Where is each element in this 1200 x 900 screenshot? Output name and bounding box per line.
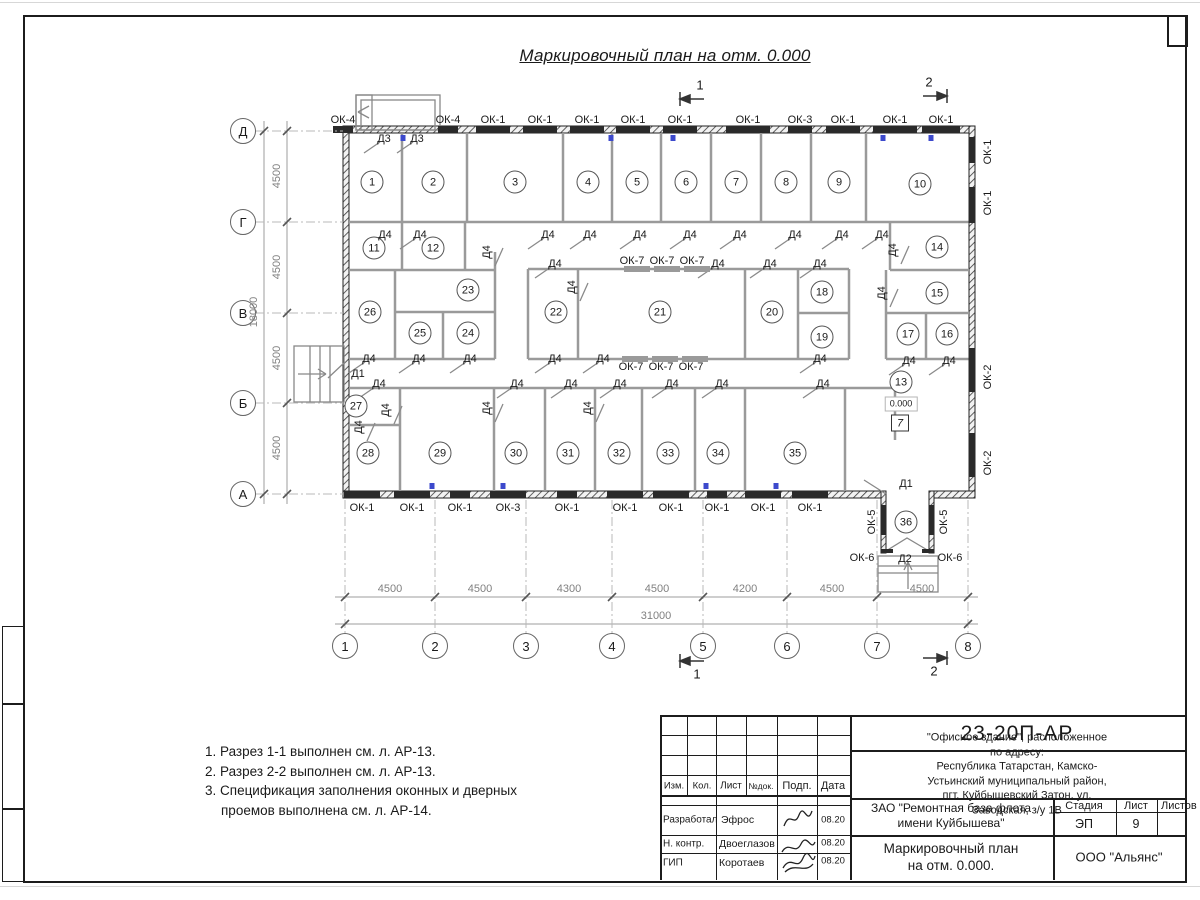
tb-client: ЗАО "Ремонтная база флота имени Куйбышев… [871, 801, 1031, 831]
tb-sheet-title: Маркировочный план на отм. 0.000. [884, 840, 1019, 874]
section-number: 1 [693, 667, 700, 682]
tb-name: Двоеглазов [719, 838, 775, 850]
signature [781, 806, 815, 832]
note-line: 3. Спецификация заполнения оконных и две… [205, 781, 517, 801]
tb-col-ndok: №док. [749, 781, 774, 791]
dimension-lines [264, 121, 978, 624]
tb-col-kol: Кол. [693, 781, 712, 792]
elevation-mark: 0.000 [885, 397, 918, 412]
tb-stage-value: ЭП [1075, 817, 1093, 831]
signature [779, 838, 817, 878]
tb-col-data: Дата [821, 780, 845, 792]
drawing-sheet: Маркировочный план на отм. 0.000 [0, 0, 1200, 900]
section-number: 1 [696, 78, 703, 93]
tb-date: 08.20 [821, 838, 845, 849]
tb-col-izm: Изм. [664, 781, 684, 792]
tb-role: ГИП [663, 858, 683, 869]
tb-name: Эфрос [721, 814, 754, 826]
floor-type-mark: 7 [891, 415, 909, 432]
tb-col-podp: Подп. [782, 780, 811, 792]
tb-sheet-number: 9 [1133, 817, 1140, 831]
tb-company: ООО "Альянс" [1076, 850, 1163, 865]
tb-col-list: Лист [720, 781, 742, 792]
tb-sheet-label: Лист [1124, 800, 1148, 812]
tb-date: 08.20 [821, 856, 845, 867]
tb-role: Н. контр. [663, 839, 704, 850]
interior-walls [349, 133, 969, 491]
note-line: проемов выполнена см. л. АР-14. [205, 801, 517, 821]
entrance-door-leaves [328, 362, 886, 494]
tb-name: Коротаев [719, 857, 764, 869]
section-marks [680, 89, 947, 668]
tb-date: 08.20 [821, 815, 845, 826]
section-number: 2 [930, 664, 937, 679]
note-line: 1. Разрез 1-1 выполнен см. л. АР-13. [205, 742, 517, 762]
note-line: 2. Разрез 2-2 выполнен см. л. АР-13. [205, 762, 517, 782]
exterior-walls [343, 126, 975, 553]
drawing-notes: 1. Разрез 1-1 выполнен см. л. АР-13.2. Р… [205, 742, 517, 820]
entrance-porches [294, 95, 938, 592]
tb-stage-label: Стадия [1065, 800, 1103, 812]
tb-sheets-label: Листов [1161, 800, 1197, 812]
tb-role: Разработал [663, 815, 717, 826]
section-number: 2 [925, 75, 932, 90]
